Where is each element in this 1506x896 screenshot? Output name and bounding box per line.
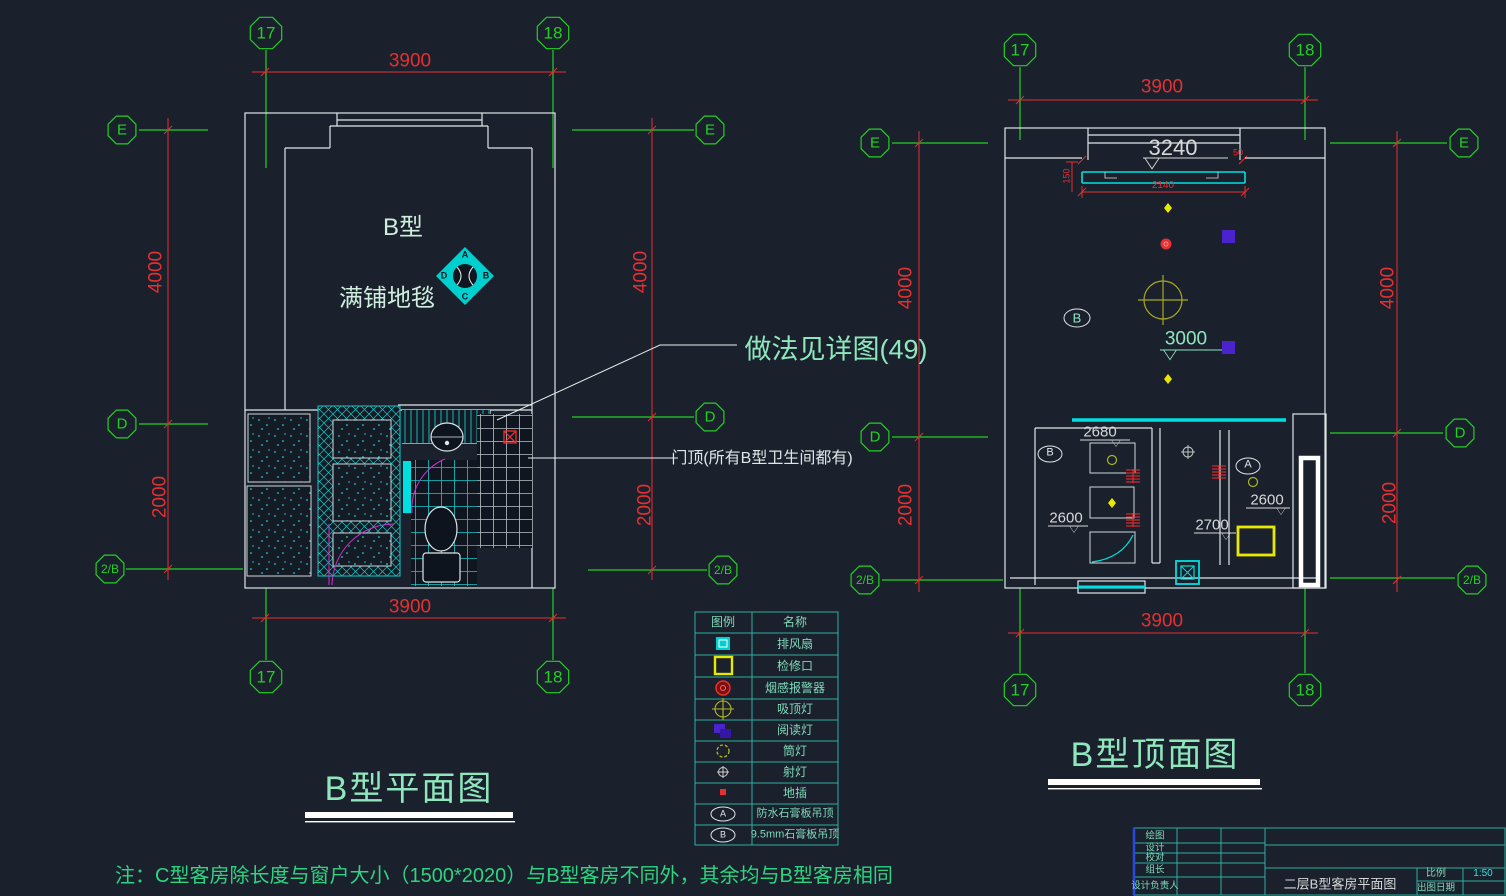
dim-4000-left: 4000 [147,251,166,293]
grid-bubble-18-label: 18 [1296,682,1315,699]
red-hatch-2 [1126,513,1140,527]
grid-bubble-e-label: E [117,123,127,138]
downlight-icon [717,745,729,757]
dim-2000-left: 2000 [897,484,916,526]
right-dim-lines [915,96,1401,637]
access-panel-symbol [1238,527,1274,555]
dim-2000-right: 2000 [1381,482,1400,524]
zone-a-bath-label: A [1244,460,1251,471]
grid-bubble-2b-label: 2/B [856,574,874,586]
legend-row-name: 阅读灯 [777,724,813,736]
grid-bubble-e-label: E [705,123,715,138]
dim-3900-top: 3900 [389,52,431,71]
right-plan-cyan [1072,172,1286,587]
legend-header-symbol: 图例 [711,616,735,628]
title-block-drawing-title: 二层B型客房平面图 [1284,878,1397,891]
zone-b-closet-label: B [1046,448,1053,459]
grid-bubble-17-label: 17 [1011,682,1030,699]
smoke-alarm-symbol [1161,239,1172,250]
legend-row-name: 烟感报警器 [765,682,825,694]
reading-lamp-symbol-2 [1222,341,1235,354]
ceiling-height-2600-closet: 2600 [1049,511,1082,526]
reading-lamp-symbol-1 [1222,230,1235,243]
ceiling-symbols [1108,203,1258,508]
left-plan-bathroom [247,345,737,586]
dim-150: 150 [1063,168,1072,183]
grid-bubble-e-label: E [1459,136,1469,151]
door-callout-text: 门顶(所有B型卫生间都有) [671,451,852,467]
ceiling-height-2600-bath: 2600 [1250,493,1283,508]
grid-bubble-2b-label: 2/B [714,564,732,576]
title-block-row-chief: 设计负责人 [1131,881,1179,891]
grid-bubble-17-label: 17 [257,25,276,42]
legend-row-name: 射灯 [783,766,807,778]
legend-row-name: 排风扇 [777,638,813,650]
grid-bubble-18-label: 18 [1296,42,1315,59]
ceiling-height-2680: 2680 [1083,425,1116,440]
zone-b-room-label: B [1073,312,1082,325]
legend-row-name: 防水石膏板吊顶 [757,809,834,820]
dim-3900-top: 3900 [1141,78,1183,97]
access-panel-icon [715,657,732,674]
left-grid-bubbles [96,17,737,692]
legend-row-name: 地插 [783,787,807,799]
dim-50: 50 [1233,149,1243,158]
floor-socket-icon [720,789,726,795]
compass-letter-left: D [441,272,448,281]
grid-bubble-18-label: 18 [544,669,563,686]
dim-2140: 2140 [1152,181,1174,191]
vanity-edge [403,461,411,513]
grid-bubble-d-label: D [1455,426,1466,441]
exhaust-fan-symbol [1176,561,1199,584]
title-block-row-check: 校对 [1145,853,1164,863]
spotlight-symbol [1181,445,1195,459]
grid-bubble-d-label: D [117,417,128,432]
title-block-scale-label: 比例 [1426,869,1446,879]
downlight-symbol-1 [1108,456,1117,465]
dim-4000-right: 4000 [632,251,651,293]
grid-bubble-2b-label: 2/B [101,563,119,575]
dim-3900-bottom: 3900 [1141,612,1183,631]
compass-letter-top: A [462,251,469,260]
door-frame-thick [1301,458,1318,585]
ceiling-height-3000: 3000 [1165,330,1207,349]
legend-row-name: 检修口 [777,660,813,672]
reading-lamp-icon [714,724,731,738]
exhaust-fan-icon [716,637,730,650]
grid-bubble-17-label: 17 [257,669,276,686]
grid-bubble-d-label: D [705,410,716,425]
leader-detail-callout [497,345,737,420]
curtain-hooks [1105,172,1218,178]
dim-3900-bottom: 3900 [389,598,431,617]
red-hatch-3 [1212,465,1226,479]
title-block-row-draw: 绘图 [1145,831,1164,841]
room-type-label: B型 [383,216,423,240]
legend-header-name: 名称 [783,616,807,628]
grid-bubble-18-label: 18 [544,25,563,42]
title-block-date-label: 出图日期 [1417,883,1455,893]
ceiling-lamp-icon [712,698,734,720]
grid-bubble-2b-label: 2/B [1463,574,1481,586]
compass-letter-right: B [483,272,490,281]
dim-2000-right: 2000 [636,484,655,526]
compass-letter-bottom: C [462,293,469,302]
left-dim-lines [164,68,656,622]
wardrobe-stipple-upper [248,414,310,482]
ceiling-height-2700: 2700 [1195,518,1228,533]
carpet-label: 满铺地毯 [339,287,435,311]
cad-viewport: 17 18 17 18 E E D D 2/B 2/B 3900 3900 40… [0,0,1506,896]
title-block-row-lead: 组长 [1145,865,1164,875]
right-plan-title: B型顶面图 [1071,738,1240,772]
grid-bubble-d-label: D [870,430,881,445]
dim-4000-left: 4000 [897,267,916,309]
dim-2000-left: 2000 [151,476,170,518]
legend-type-a-letter: A [720,810,726,819]
left-plan-title: B型平面图 [325,772,494,806]
general-note: 注：C型客房除长度与窗户大小（1500*2020）与B型客房不同外，其余均与B型… [115,866,893,886]
red-hatch-1 [1126,469,1140,483]
title-block-scale-value: 1:50 [1473,869,1492,879]
legend-type-b-letter: B [720,831,726,840]
legend-row-name: 吸顶灯 [777,703,813,715]
smoke-alarm-icon [716,681,730,695]
grid-bubble-17-label: 17 [1011,42,1030,59]
grid-bubble-e-label: E [870,136,880,151]
ceiling-lamp-symbol [1138,275,1188,325]
dim-4000-right: 4000 [1379,267,1398,309]
sink [431,423,463,451]
legend-row-name: 9.5mm石膏板吊顶 [751,830,840,841]
legend-row-name: 筒灯 [783,745,807,757]
detail-callout-text: 做法见详图(49) [744,337,927,364]
cad-linework [0,0,1506,896]
spotlight-icon [717,766,729,778]
zone-ellipses [1038,309,1260,474]
ceiling-height-3240: 3240 [1149,137,1198,159]
downlight-symbol-2 [1249,478,1258,487]
wardrobe-stipple-lower [247,486,311,576]
